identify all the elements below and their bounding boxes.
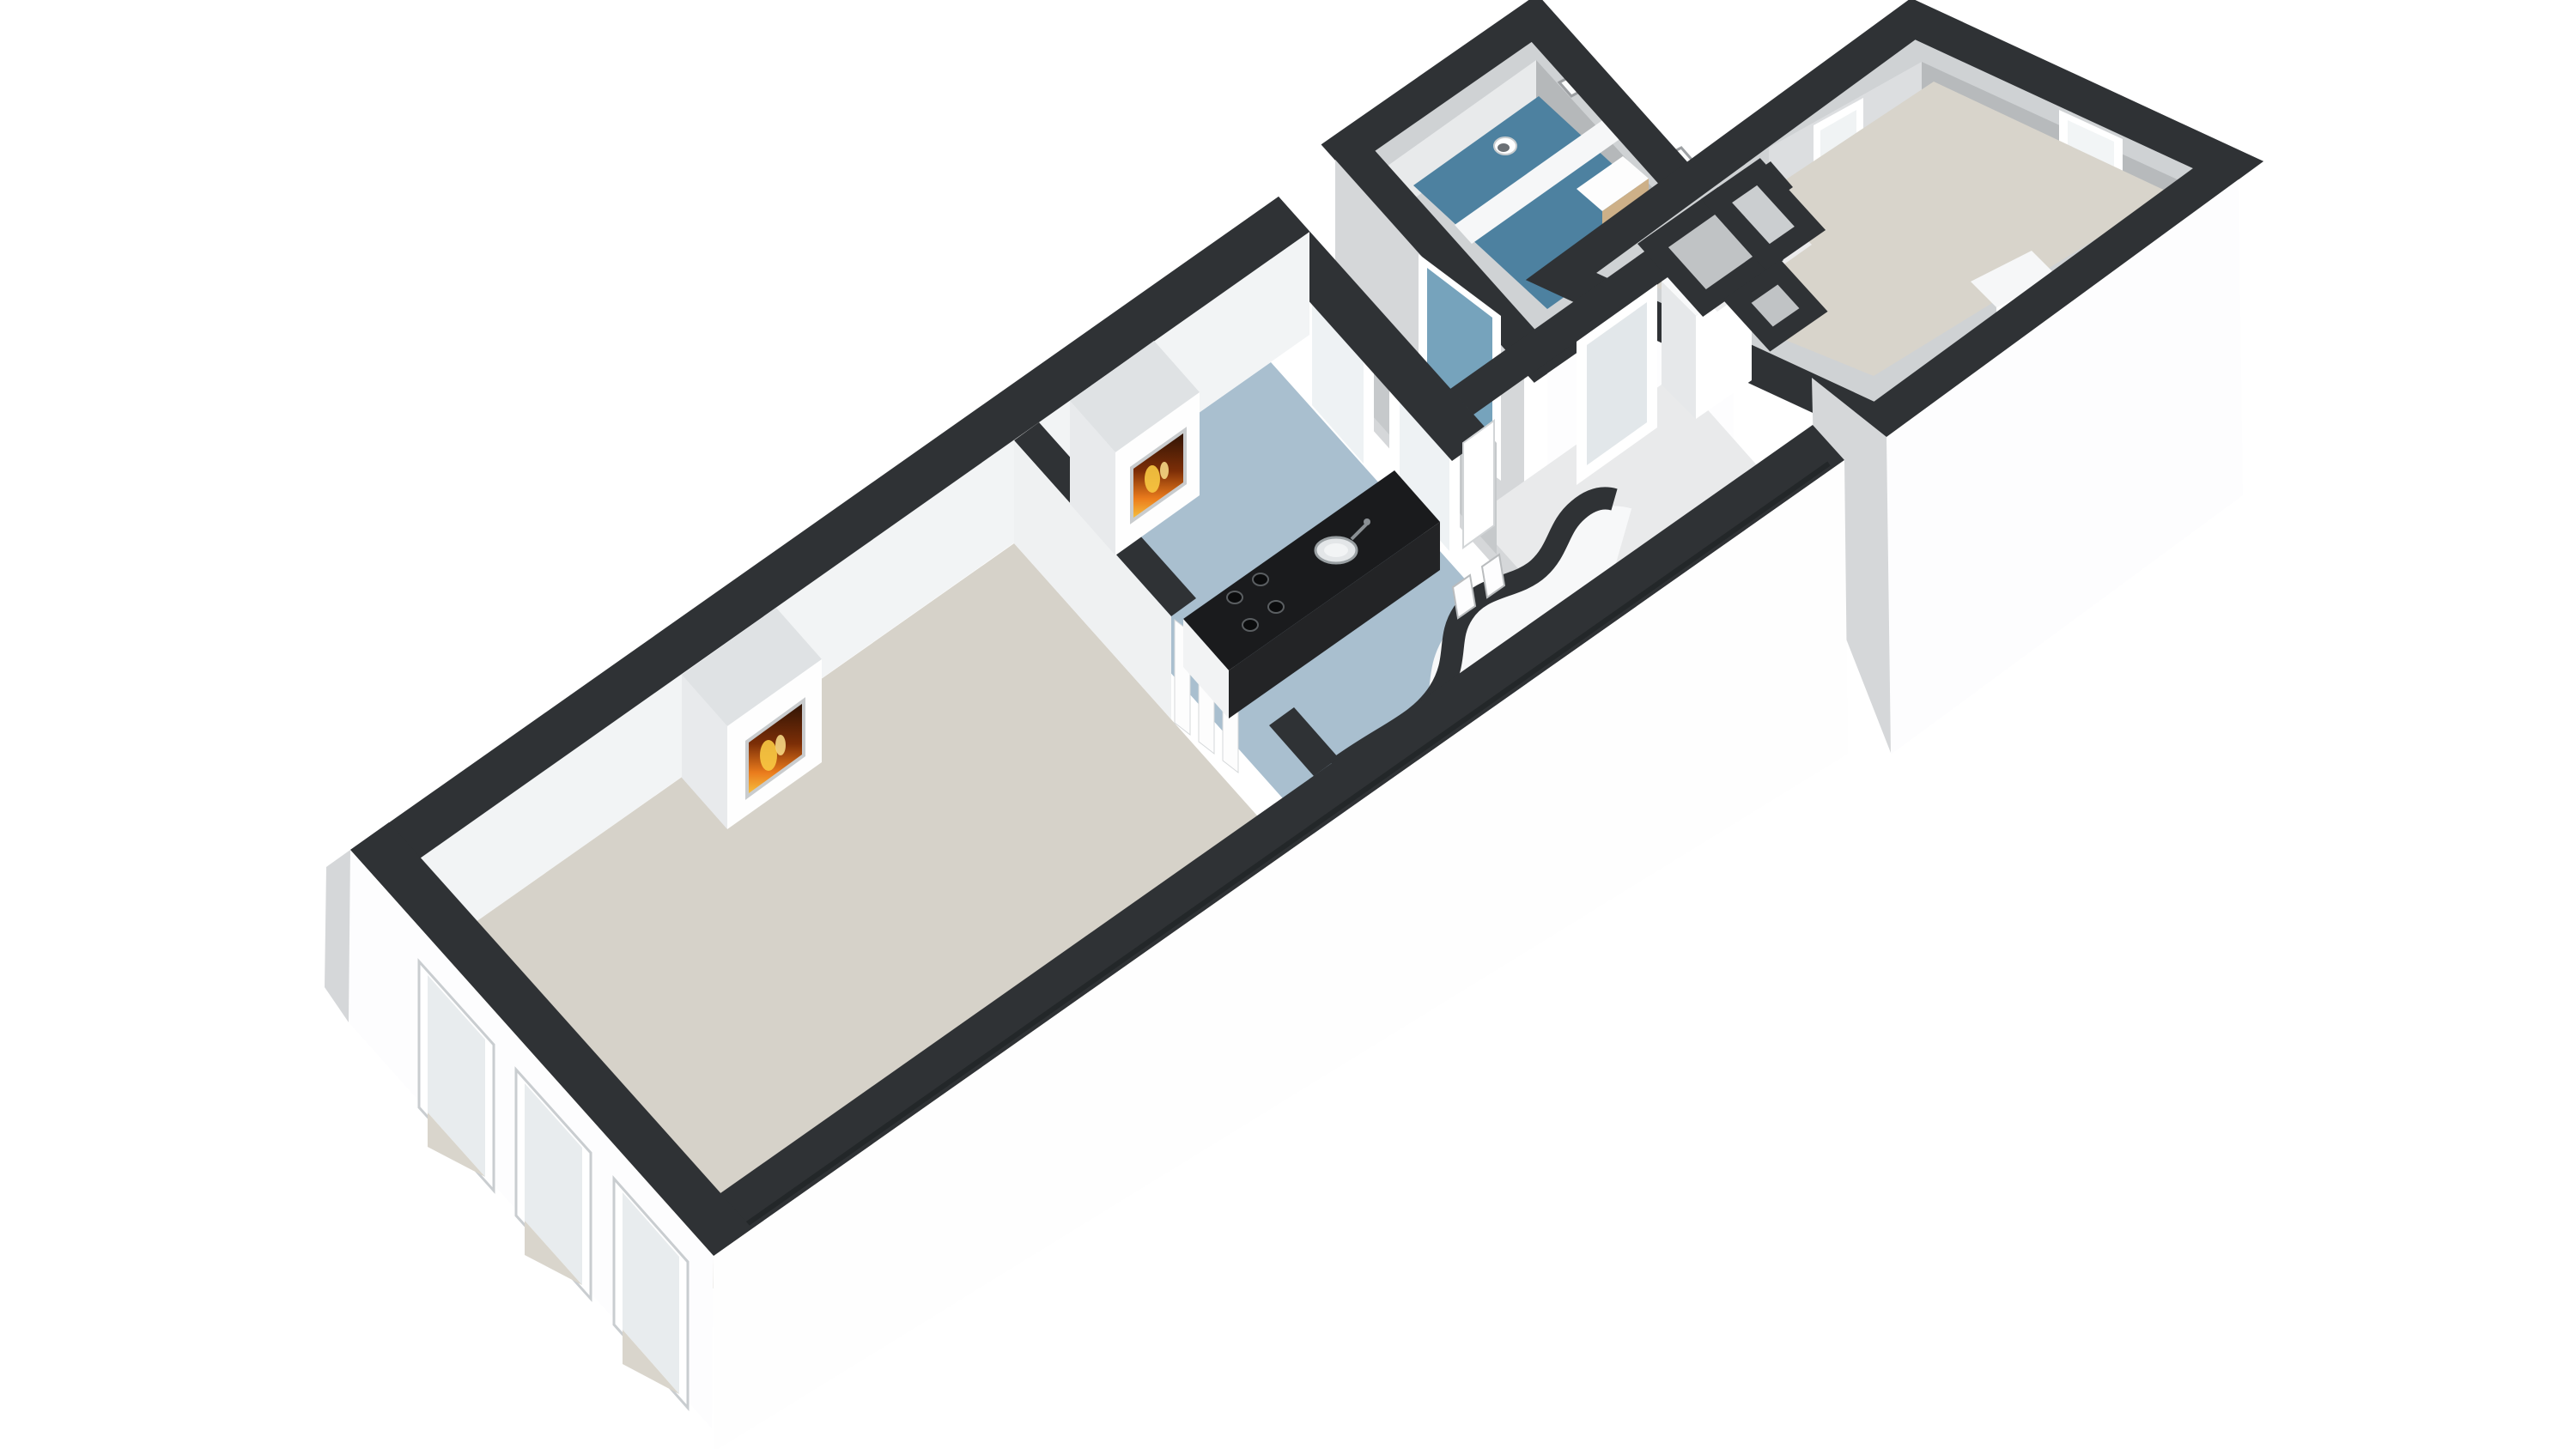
hob-burner-2 [1253, 573, 1268, 585]
floor-plan-stage [0, 0, 2576, 1449]
kitchen-flame-1 [1145, 465, 1160, 493]
hob-burner-3 [1268, 601, 1284, 613]
kitchen-open-door-leaf [1463, 421, 1494, 548]
kitchen-flame-2 [1160, 462, 1169, 479]
hob-burner-1 [1227, 591, 1242, 603]
hob-burner-4 [1242, 619, 1258, 631]
toilet-seat [1498, 143, 1510, 152]
living-flame-2 [775, 735, 786, 755]
sink-bowl [1324, 543, 1348, 557]
sink-faucet-head [1364, 518, 1370, 525]
floor-plan-layers [325, 18, 2243, 1449]
west-corner-sliver [325, 850, 350, 1022]
living-flame-1 [760, 740, 777, 771]
floor-plan-svg [0, 0, 2576, 1449]
